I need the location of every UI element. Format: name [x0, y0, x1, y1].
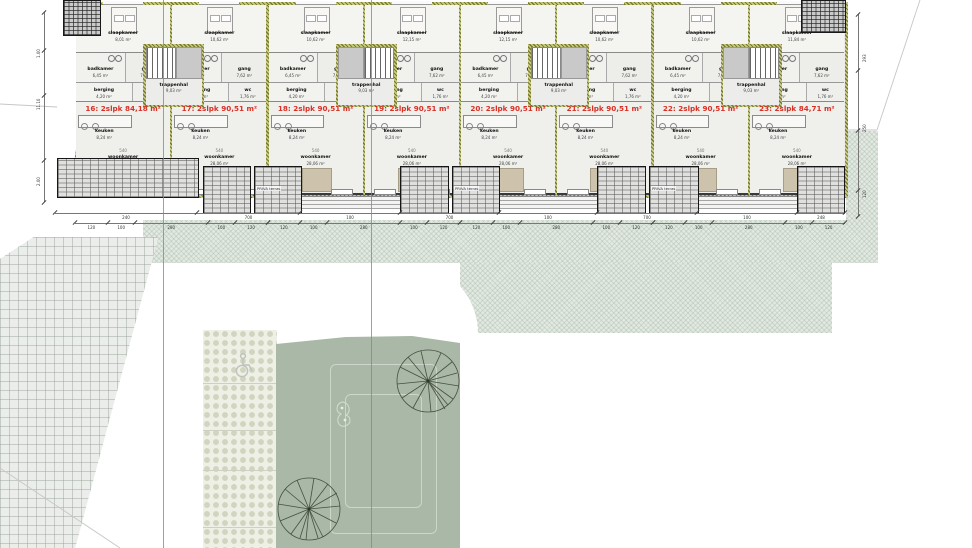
dimension-number: 120: [440, 225, 448, 230]
dimension-number: 700: [245, 215, 253, 220]
dimension-number: 120: [280, 225, 288, 230]
dimension-number: 280: [360, 225, 368, 230]
dimension-number: 700: [643, 215, 651, 220]
dimension-number: 100: [310, 225, 318, 230]
dimension-number: 120: [825, 225, 833, 230]
dimension: [843, 220, 848, 225]
dimension-number: 120: [247, 225, 255, 230]
dimension-number: 280: [745, 225, 753, 230]
dimension-number: 100: [410, 225, 418, 230]
dimension-number: 280: [552, 225, 560, 230]
dimension-number: 100: [743, 215, 751, 220]
dimension: [55, 213, 845, 214]
dimension-number: 100: [346, 215, 354, 220]
dimension-number: 100: [544, 215, 552, 220]
dimension-number: 120: [862, 190, 867, 198]
dimension: [843, 210, 848, 215]
dimension-number: 120: [88, 225, 96, 230]
dimension-number: 100: [217, 225, 225, 230]
dimension-number: 100: [117, 225, 125, 230]
dimension-lines: 2407001007001007001002481201002801001201…: [0, 0, 972, 548]
dimension-number: 280: [167, 225, 175, 230]
section-line-blue: [163, 0, 164, 548]
dimension: [75, 223, 268, 224]
dimension-number: 120: [632, 225, 640, 230]
dimension-number: 120: [665, 225, 673, 230]
floor-plan-drawing: slaapkamer8,01 m² badkamer6,45 m² gang7,…: [0, 0, 972, 548]
dimension-number: 248: [817, 215, 825, 220]
dimension: [44, 12, 45, 202]
dimension: [460, 223, 653, 224]
dimension-number: 11.10: [36, 99, 41, 110]
dimension-number: 100: [695, 225, 703, 230]
dimension: [856, 214, 861, 219]
dimension: [42, 200, 47, 205]
dimension-number: 100: [502, 225, 510, 230]
dimension-number: 2.00: [36, 177, 41, 186]
dimension-number: 240: [122, 215, 130, 220]
dimension: [858, 14, 859, 216]
section-line-blue: [371, 0, 372, 548]
dimension-number: 1.00: [36, 49, 41, 58]
dimension-number: 250: [862, 124, 867, 132]
dimension-number: 100: [602, 225, 610, 230]
dimension-number: 120: [473, 225, 481, 230]
dimension-number: 100: [795, 225, 803, 230]
dimension-number: 700: [446, 215, 454, 220]
dimension-number: 293: [862, 54, 867, 62]
